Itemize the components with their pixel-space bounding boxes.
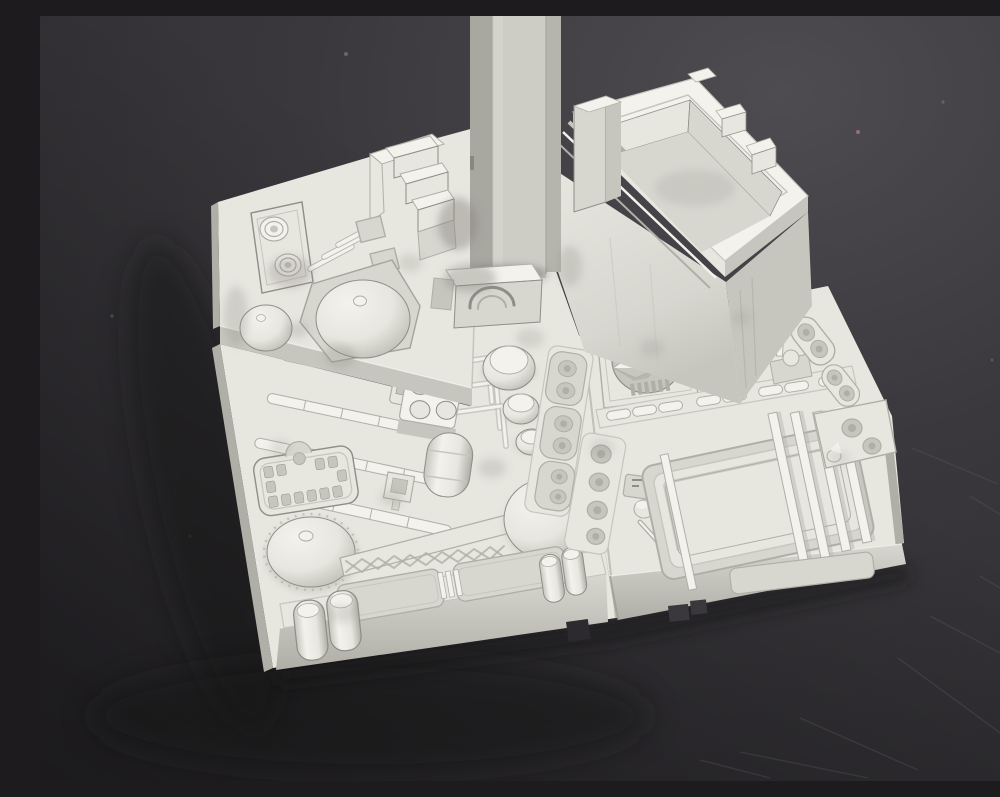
large-dome xyxy=(316,280,410,358)
wall-notch xyxy=(668,604,690,622)
pink-speck xyxy=(856,130,860,134)
wall-notch xyxy=(690,599,707,615)
wall-notch xyxy=(566,619,591,642)
rod-nick xyxy=(470,156,474,170)
rim-slab xyxy=(574,96,621,212)
photo-model-panel xyxy=(40,16,1000,781)
